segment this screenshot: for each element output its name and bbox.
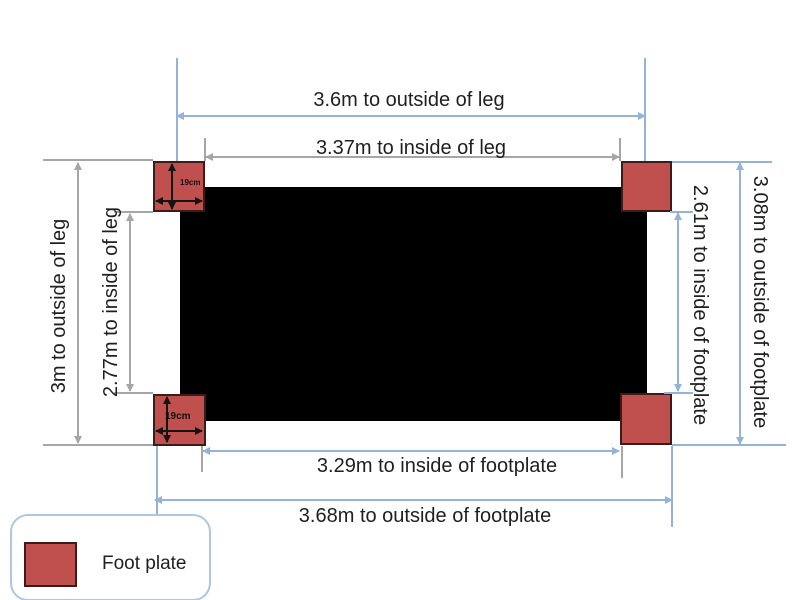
footplate-bottom-right: [620, 393, 672, 445]
footplate-tl-vertical-arrow: [171, 164, 173, 209]
dim-arrow-right-inside-footplate: [677, 213, 679, 391]
legend-footplate-label: Foot plate: [102, 552, 187, 576]
extension-line: [621, 446, 623, 478]
footplate-bl-horizontal-arrow: [156, 430, 202, 432]
footplate-tl-size-label: 19cm: [180, 178, 200, 187]
dim-label-right-inside-footplate: 2.61m to inside of footplate: [688, 145, 712, 465]
extension-line: [644, 58, 646, 161]
legend-box: Foot plate: [10, 514, 211, 600]
dim-arrow-left-outside-leg: [77, 163, 79, 443]
dim-label-left-inside-leg: 2.77m to inside of leg: [99, 142, 123, 462]
dim-label-bottom-inside-footplate: 3.29m to inside of footplate: [277, 454, 597, 478]
footplate-top-right: [621, 161, 672, 212]
mat-rect: [180, 187, 647, 421]
dim-label-left-outside-leg: 3m to outside of leg: [47, 146, 71, 466]
dim-arrow-bottom-outside-footplate: [155, 499, 672, 501]
extension-line: [176, 58, 178, 161]
dim-label-top-inside-leg: 3.37m to inside of leg: [251, 136, 571, 160]
dim-arrow-left-inside-leg: [129, 214, 131, 391]
dim-arrow-top-outside-leg: [177, 115, 645, 117]
extension-line: [671, 446, 673, 527]
dim-label-right-outside-footplate: 3.08m to outside of footplate: [748, 142, 772, 462]
dim-arrow-bottom-inside-footplate: [203, 450, 619, 452]
dimension-diagram: 19cm 19cm 3.6m to outside of leg 3.37m t…: [0, 0, 800, 600]
dim-arrow-right-outside-footplate: [739, 163, 741, 444]
footplate-swatch: [24, 542, 77, 587]
dim-label-bottom-outside-footplate: 3.68m to outside of footplate: [265, 504, 585, 528]
footplate-tl-horizontal-arrow: [156, 200, 202, 202]
dim-label-top-outside-leg: 3.6m to outside of leg: [249, 88, 569, 112]
footplate-bl-size-label: 19cm: [165, 411, 191, 422]
